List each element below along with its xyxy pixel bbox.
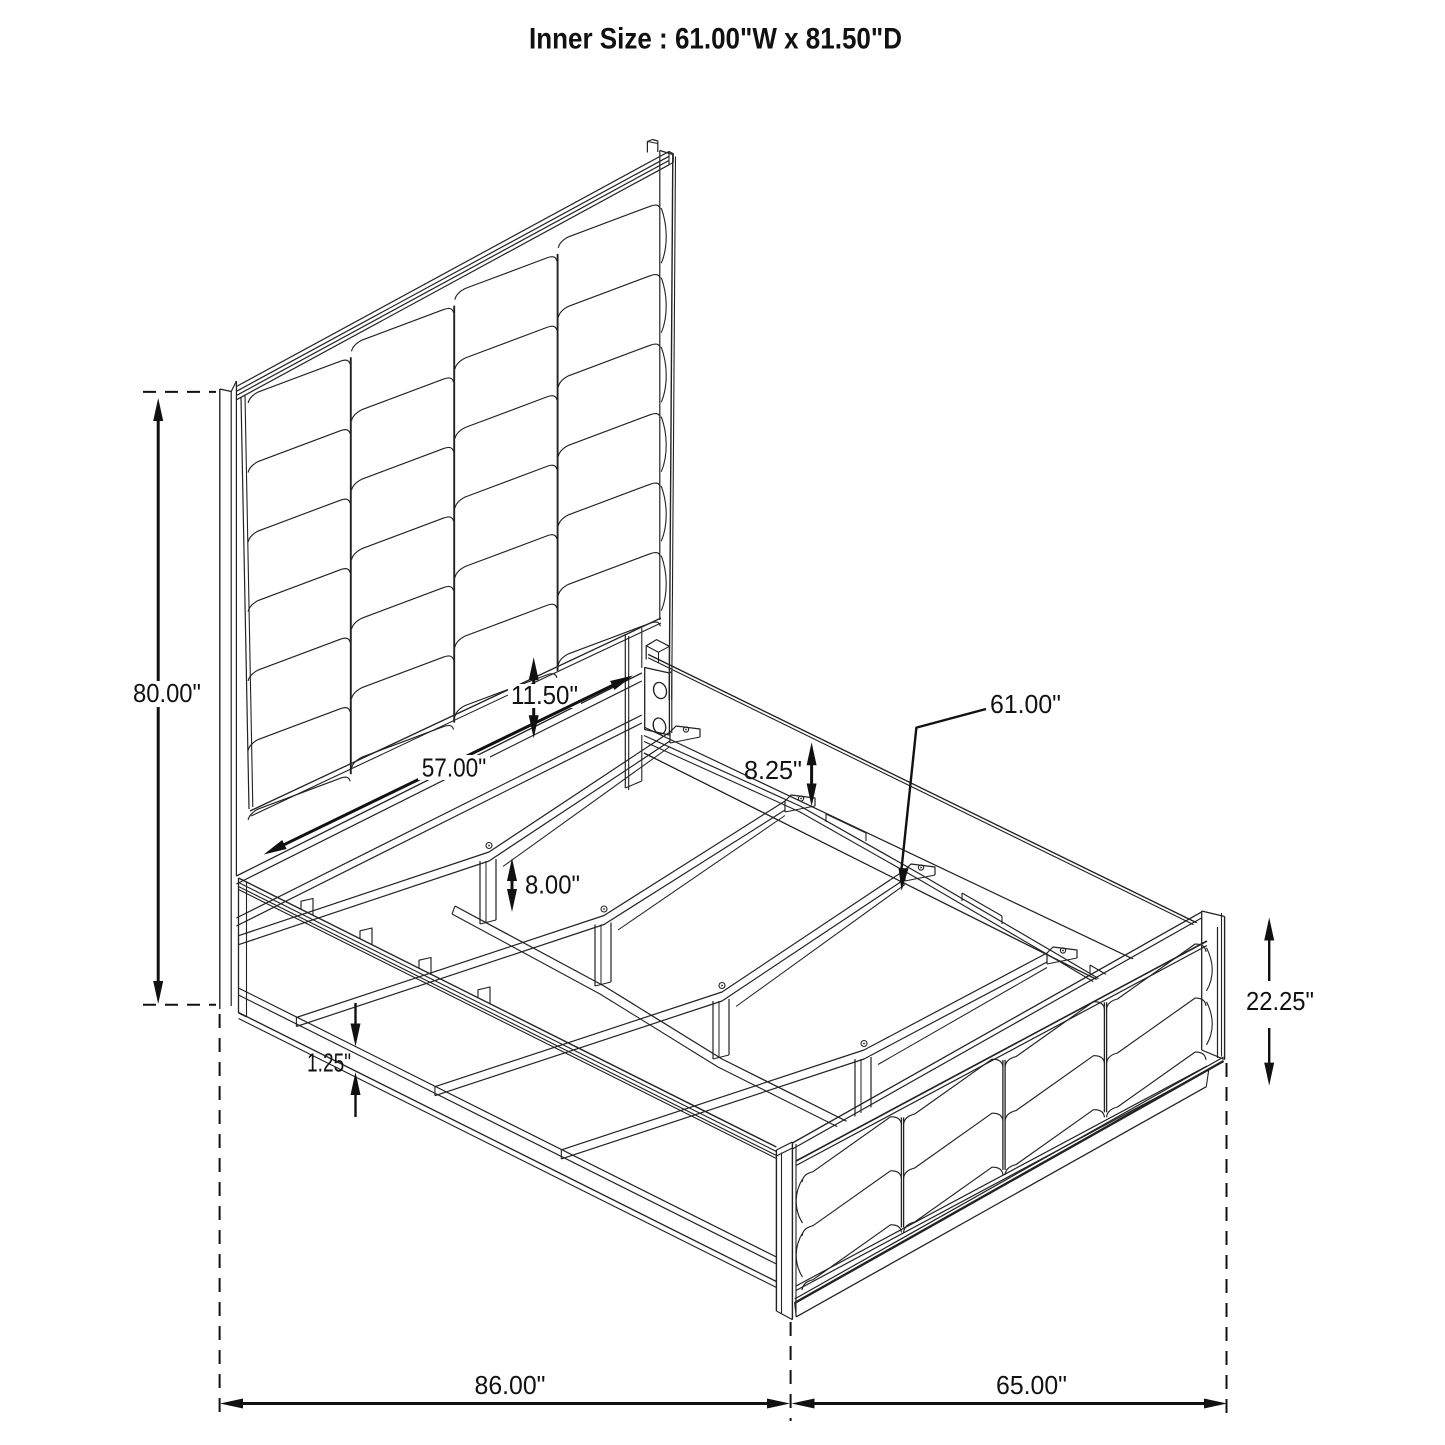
svg-text:8.25": 8.25": [744, 757, 802, 785]
svg-text:Inner Size : 61.00"W x 81.50"D: Inner Size : 61.00"W x 81.50"D: [529, 23, 902, 56]
svg-text:57.00": 57.00": [422, 755, 487, 783]
svg-text:86.00": 86.00": [475, 1372, 546, 1400]
svg-text:8.00": 8.00": [525, 872, 580, 900]
svg-text:61.00": 61.00": [990, 691, 1061, 719]
svg-text:22.25": 22.25": [1246, 988, 1314, 1016]
svg-text:1.25": 1.25": [307, 1050, 351, 1078]
svg-text:80.00": 80.00": [133, 680, 201, 708]
svg-text:65.00": 65.00": [996, 1372, 1067, 1400]
